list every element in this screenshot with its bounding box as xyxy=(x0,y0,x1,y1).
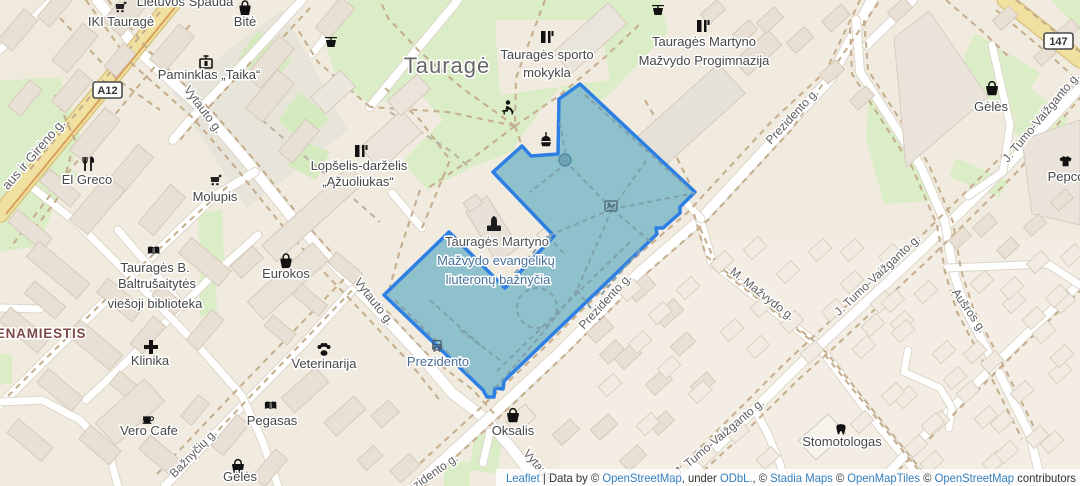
svg-text:Leaflet | Data by © OpenStreet: Leaflet | Data by © OpenStreetMap, under… xyxy=(506,471,1076,485)
svg-text:A12: A12 xyxy=(97,85,117,97)
svg-text:Tauragė: Tauragė xyxy=(404,53,491,78)
svg-text:viešoji biblioteka: viešoji biblioteka xyxy=(108,296,203,311)
svg-text:Pegasas: Pegasas xyxy=(247,413,298,428)
svg-text:El Greco: El Greco xyxy=(62,172,113,187)
svg-text:Tauragės sporto: Tauragės sporto xyxy=(500,47,593,62)
svg-text:IKI Tauragė: IKI Tauragė xyxy=(88,14,154,29)
svg-text:Tauragės Martyno: Tauragės Martyno xyxy=(652,34,756,49)
svg-text:SENAMIESTIS: SENAMIESTIS xyxy=(0,326,86,341)
svg-text:Pepco: Pepco xyxy=(1048,169,1080,184)
svg-text:Oksalis: Oksalis xyxy=(492,423,535,438)
svg-text:Tauragės Martyno: Tauragės Martyno xyxy=(445,234,549,249)
svg-text:Molupis: Molupis xyxy=(193,189,238,204)
svg-text:liuteronų bažnyčia: liuteronų bažnyčia xyxy=(446,272,552,287)
svg-text:Gėlės: Gėlės xyxy=(974,99,1008,114)
svg-text:Lopšelis-darželis: Lopšelis-darželis xyxy=(311,158,408,173)
svg-text:Baltrušaitytės: Baltrušaitytės xyxy=(118,276,197,291)
svg-text:Stomotologas: Stomotologas xyxy=(802,434,882,449)
svg-text:Mažvydo Progimnazija: Mažvydo Progimnazija xyxy=(639,53,771,68)
svg-text:Gėlės: Gėlės xyxy=(223,469,257,484)
svg-text:Klinika: Klinika xyxy=(131,353,170,368)
svg-text:147: 147 xyxy=(1049,36,1067,48)
svg-text:„Ąžuoliukas“: „Ąžuoliukas“ xyxy=(322,174,394,189)
svg-text:Lietuvos Spauda: Lietuvos Spauda xyxy=(137,0,235,9)
svg-text:mokykla: mokykla xyxy=(523,65,571,80)
svg-text:Eurokos: Eurokos xyxy=(262,266,310,281)
svg-text:Prezidento: Prezidento xyxy=(407,354,469,369)
svg-text:Tauragės B.: Tauragės B. xyxy=(120,260,189,275)
svg-text:Bitė: Bitė xyxy=(234,14,256,29)
svg-text:Vero Cafe: Vero Cafe xyxy=(120,423,178,438)
svg-text:Veterinarija: Veterinarija xyxy=(291,356,357,371)
svg-text:Paminklas „Taika“: Paminklas „Taika“ xyxy=(158,67,261,82)
svg-text:Mažvydo evangelikų: Mažvydo evangelikų xyxy=(437,253,555,268)
